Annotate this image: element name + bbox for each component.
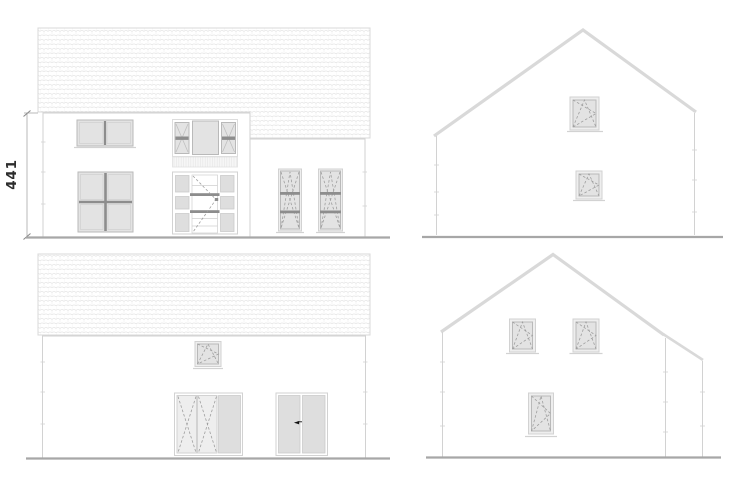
height-dimension: 441	[4, 111, 38, 240]
rear-roof	[38, 254, 370, 335]
height-dimension-label: 441	[4, 159, 20, 190]
door-side-panels-right	[221, 176, 235, 232]
front-wing-wall	[250, 139, 365, 237]
elevations-svg: 441	[0, 0, 736, 491]
gable2-upper-window-1	[506, 319, 539, 354]
door-side-panels-left	[176, 176, 190, 232]
door-handle	[215, 198, 218, 201]
rear-small-window	[193, 342, 223, 369]
left-gable-elevation	[426, 255, 721, 458]
rear-elevation: ◄	[26, 254, 390, 459]
fixed-pane	[193, 121, 219, 155]
double-door-right-leaf	[303, 396, 326, 454]
gable-upper-window	[567, 97, 603, 132]
sliding-fixed-panel	[219, 396, 241, 454]
sliding-leaf-1	[177, 396, 197, 454]
wing-french-window-2	[316, 169, 345, 233]
gable-lower-window	[573, 171, 605, 201]
elevation-drawing-sheet: 441	[0, 0, 736, 491]
gable-wall-ticks	[434, 150, 697, 215]
wing-french-window-1	[276, 169, 304, 233]
front-large-window	[78, 172, 133, 232]
gable-roof-edge	[434, 30, 696, 136]
gable2-upper-window-2	[570, 319, 603, 354]
casement-left	[175, 123, 189, 154]
gable2-roof-edge	[441, 255, 664, 336]
sliding-leaf-2	[198, 396, 218, 454]
gable2-lower-window	[525, 393, 557, 437]
casement-right	[222, 123, 236, 154]
front-elevation: 441	[4, 28, 390, 240]
front-center-window-group	[173, 120, 238, 168]
right-gable-elevation	[422, 30, 723, 237]
front-upper-left-window	[74, 120, 136, 148]
door-swing-arrow-icon: ◄	[294, 419, 300, 427]
rear-sliding-door	[175, 393, 243, 456]
wing-roof-edge	[663, 334, 703, 360]
shutter-box	[173, 157, 238, 167]
